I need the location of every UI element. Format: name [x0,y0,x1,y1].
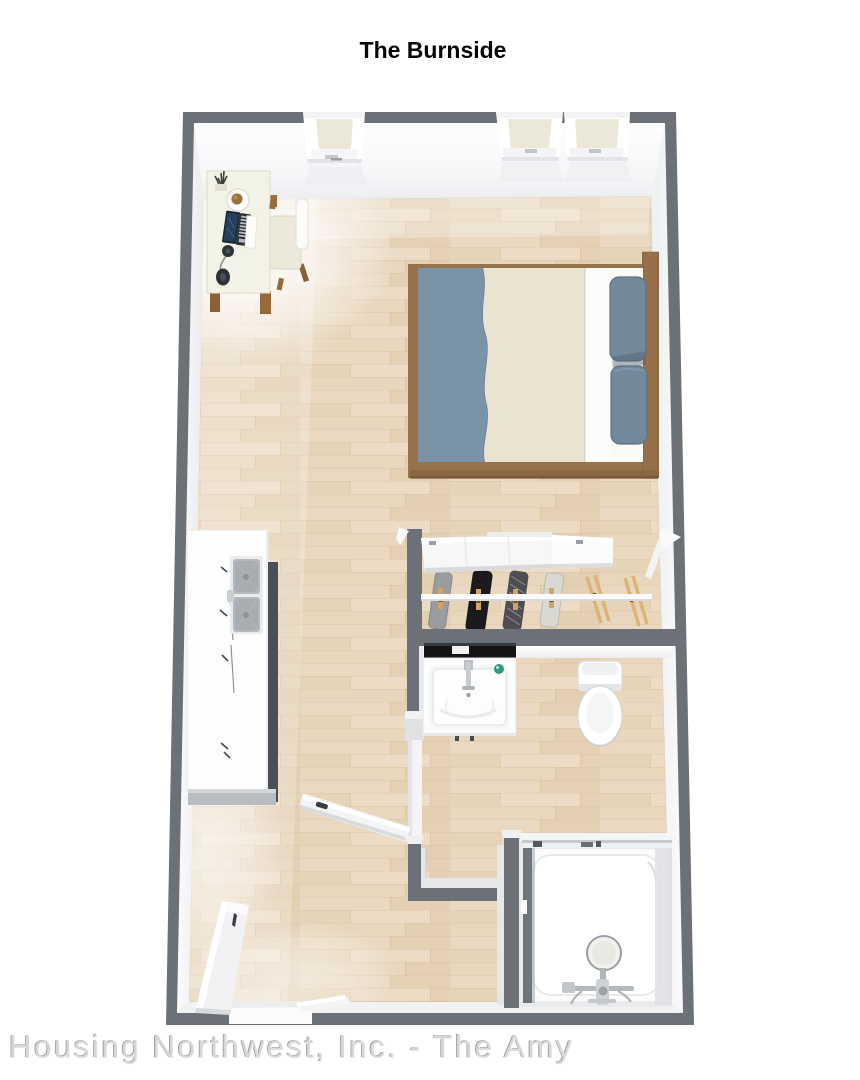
svg-text:Housing Northwest, Inc. - The: Housing Northwest, Inc. - The Amy [9,1029,574,1065]
svg-text:The Burnside: The Burnside [360,37,507,63]
